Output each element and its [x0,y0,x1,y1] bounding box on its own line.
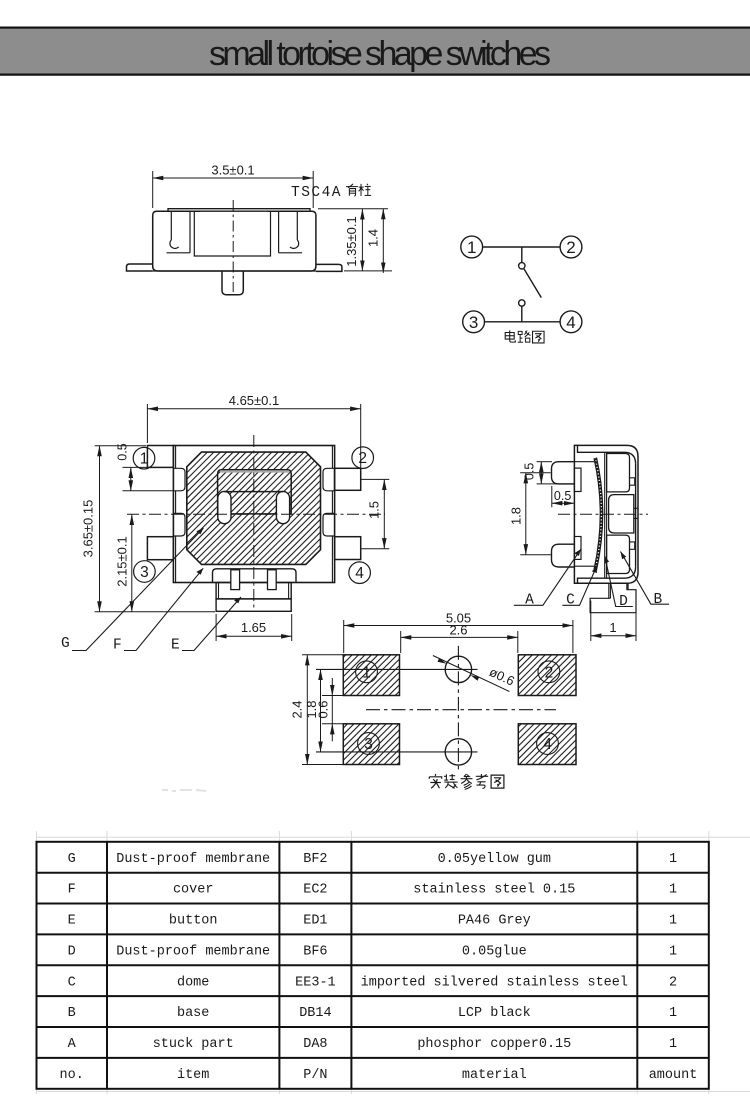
svg-text:2: 2 [669,975,677,990]
svg-text:3: 3 [364,736,373,753]
svg-text:1.5: 1.5 [367,501,382,519]
svg-text:1: 1 [467,238,476,257]
svg-text:small tortoise shape switches: small tortoise shape switches [209,35,551,73]
svg-text:C: C [566,593,575,609]
svg-text:0.05glue: 0.05glue [462,944,527,959]
svg-text:4: 4 [355,565,364,582]
svg-text:PA46 Grey: PA46 Grey [458,914,531,929]
svg-text:1.65: 1.65 [241,620,266,635]
svg-text:ED1: ED1 [303,914,327,929]
svg-text:BF6: BF6 [303,944,327,959]
svg-text:2: 2 [545,664,554,681]
svg-text:base: base [177,1006,209,1021]
svg-text:2: 2 [358,450,367,467]
svg-text:C: C [68,975,76,990]
svg-text:0.5: 0.5 [554,489,571,503]
svg-text:stuck part: stuck part [153,1037,234,1052]
svg-text:BF2: BF2 [303,852,327,867]
svg-text:A: A [68,1037,77,1052]
svg-text:1: 1 [669,914,677,929]
svg-text:1: 1 [669,1037,677,1052]
svg-text:Dust-proof membrane: Dust-proof membrane [116,944,270,959]
svg-text:4.65±0.1: 4.65±0.1 [229,393,280,408]
svg-text:B: B [653,592,662,608]
svg-text:D: D [619,594,628,610]
svg-text:3: 3 [469,313,478,332]
svg-text:1: 1 [669,852,677,867]
svg-text:0.05yellow gum: 0.05yellow gum [438,852,551,867]
svg-text:F: F [113,638,122,654]
svg-text:4: 4 [566,313,575,332]
svg-text:1: 1 [669,944,677,959]
svg-text:4: 4 [543,736,552,753]
svg-text:item: item [177,1068,209,1083]
svg-text:1.8: 1.8 [509,507,524,525]
svg-text:1: 1 [362,664,371,681]
svg-text:1: 1 [669,883,677,898]
svg-text:2.15±0.1: 2.15±0.1 [115,536,130,587]
svg-text:E: E [171,638,180,654]
svg-text:P/N: P/N [303,1068,327,1083]
svg-text:A: A [525,593,534,609]
svg-text:1.4: 1.4 [366,229,381,247]
svg-text:Dust-proof membrane: Dust-proof membrane [116,852,270,867]
svg-text:imported silvered stainless st: imported silvered stainless steel [361,975,628,990]
svg-text:3.65±0.15: 3.65±0.15 [81,500,96,558]
svg-text:2.6: 2.6 [449,623,467,638]
svg-text:3: 3 [140,564,149,581]
svg-text:2: 2 [566,238,575,257]
svg-text:1: 1 [140,451,149,468]
svg-text:1: 1 [609,620,616,635]
svg-text:D: D [68,944,76,959]
svg-text:F: F [68,883,76,898]
svg-text:TSC4A: TSC4A [291,185,342,201]
svg-text:cover: cover [173,883,214,898]
svg-text:0.5: 0.5 [116,443,130,460]
svg-text:3.5±0.1: 3.5±0.1 [211,163,254,178]
svg-text:LCP black: LCP black [458,1006,531,1021]
svg-text:amount: amount [649,1068,698,1083]
svg-text:EC2: EC2 [303,883,327,898]
svg-text:material: material [462,1068,527,1083]
svg-text:phosphor copper0.15: phosphor copper0.15 [417,1037,571,1052]
svg-text:1.35±0.1: 1.35±0.1 [344,216,359,267]
svg-text:B: B [68,1006,76,1021]
svg-text:dome: dome [177,975,209,990]
svg-text:G: G [68,852,76,867]
svg-text:stainless steel 0.15: stainless steel 0.15 [413,883,575,898]
svg-text:no.: no. [60,1068,84,1083]
svg-text:G: G [61,636,70,652]
svg-text:2.4: 2.4 [290,700,305,718]
svg-text:button: button [169,914,218,929]
svg-text:0.6: 0.6 [316,700,331,718]
svg-text:DB14: DB14 [299,1006,331,1021]
svg-text:1: 1 [669,1006,677,1021]
svg-text:E: E [68,914,76,929]
svg-text:0.5: 0.5 [523,463,537,480]
svg-text:EE3-1: EE3-1 [295,975,336,990]
svg-text:DA8: DA8 [303,1037,327,1052]
